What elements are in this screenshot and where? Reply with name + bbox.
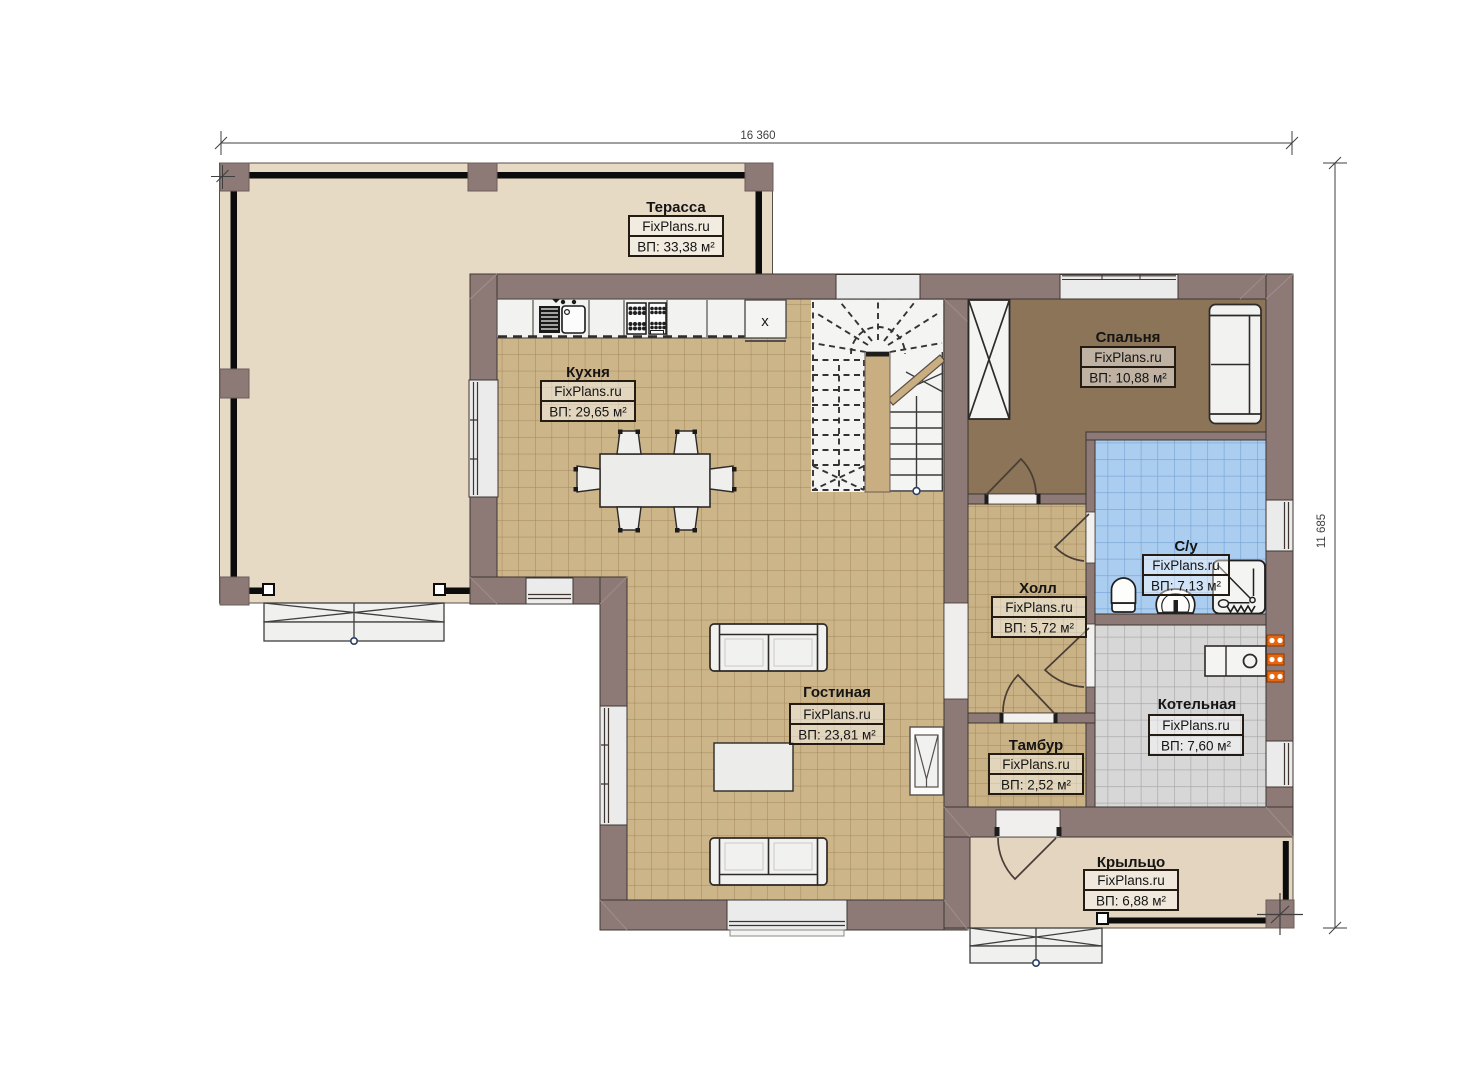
svg-text:FixPlans.ru: FixPlans.ru [642, 219, 710, 234]
svg-text:ВП: 33,38 м²: ВП: 33,38 м² [637, 240, 715, 255]
svg-text:FixPlans.ru: FixPlans.ru [803, 707, 871, 722]
svg-text:FixPlans.ru: FixPlans.ru [1002, 757, 1070, 772]
svg-text:ВП: 23,81 м²: ВП: 23,81 м² [798, 728, 876, 743]
svg-text:С/у: С/у [1174, 538, 1198, 555]
svg-text:ВП: 7,13 м²: ВП: 7,13 м² [1151, 579, 1222, 594]
svg-text:FixPlans.ru: FixPlans.ru [1097, 873, 1165, 888]
svg-text:ВП: 5,72 м²: ВП: 5,72 м² [1004, 621, 1075, 636]
svg-text:11 685: 11 685 [1316, 514, 1328, 548]
svg-text:FixPlans.ru: FixPlans.ru [1162, 718, 1230, 733]
svg-text:FixPlans.ru: FixPlans.ru [554, 384, 622, 399]
svg-text:Кухня: Кухня [566, 364, 610, 381]
svg-text:Спальня: Спальня [1096, 329, 1161, 346]
svg-text:FixPlans.ru: FixPlans.ru [1005, 600, 1073, 615]
svg-text:Крыльцо: Крыльцо [1097, 854, 1165, 871]
svg-text:ВП: 29,65 м²: ВП: 29,65 м² [549, 405, 627, 420]
svg-text:Гостиная: Гостиная [803, 684, 871, 701]
svg-text:ВП: 10,88 м²: ВП: 10,88 м² [1089, 371, 1167, 386]
svg-text:Тамбур: Тамбур [1009, 737, 1063, 754]
svg-text:FixPlans.ru: FixPlans.ru [1152, 558, 1220, 573]
svg-text:16 360: 16 360 [740, 130, 775, 142]
svg-text:Терасса: Терасса [646, 199, 706, 216]
svg-text:ВП: 6,88 м²: ВП: 6,88 м² [1096, 894, 1167, 909]
svg-text:ВП: 7,60 м²: ВП: 7,60 м² [1161, 739, 1232, 754]
svg-text:Холл: Холл [1019, 580, 1057, 597]
svg-text:Котельная: Котельная [1158, 696, 1237, 713]
svg-text:ВП: 2,52 м²: ВП: 2,52 м² [1001, 778, 1072, 793]
svg-text:x: x [761, 313, 769, 330]
svg-text:FixPlans.ru: FixPlans.ru [1094, 350, 1162, 365]
